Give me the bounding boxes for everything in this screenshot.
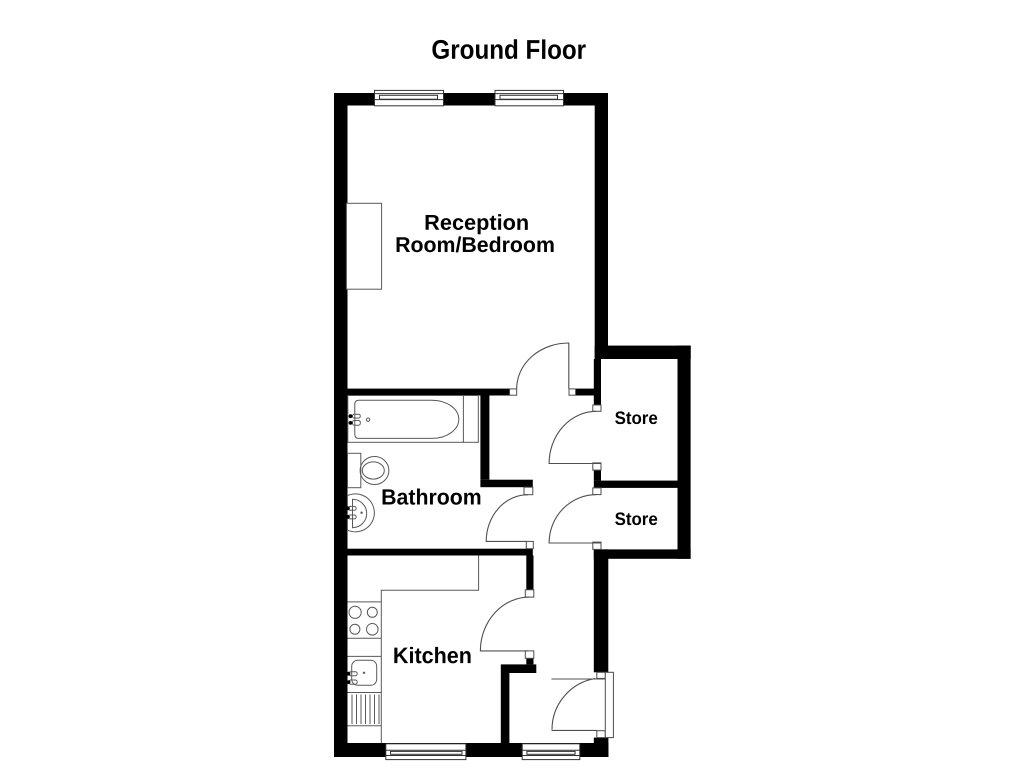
svg-text:Ground Floor: Ground Floor	[431, 35, 586, 65]
svg-text:Store: Store	[615, 408, 658, 428]
svg-text:Room/Bedroom: Room/Bedroom	[395, 233, 555, 257]
svg-text:Bathroom: Bathroom	[381, 484, 482, 509]
svg-text:Reception: Reception	[424, 211, 529, 235]
svg-text:Store: Store	[615, 509, 658, 529]
svg-text:Kitchen: Kitchen	[393, 643, 472, 668]
